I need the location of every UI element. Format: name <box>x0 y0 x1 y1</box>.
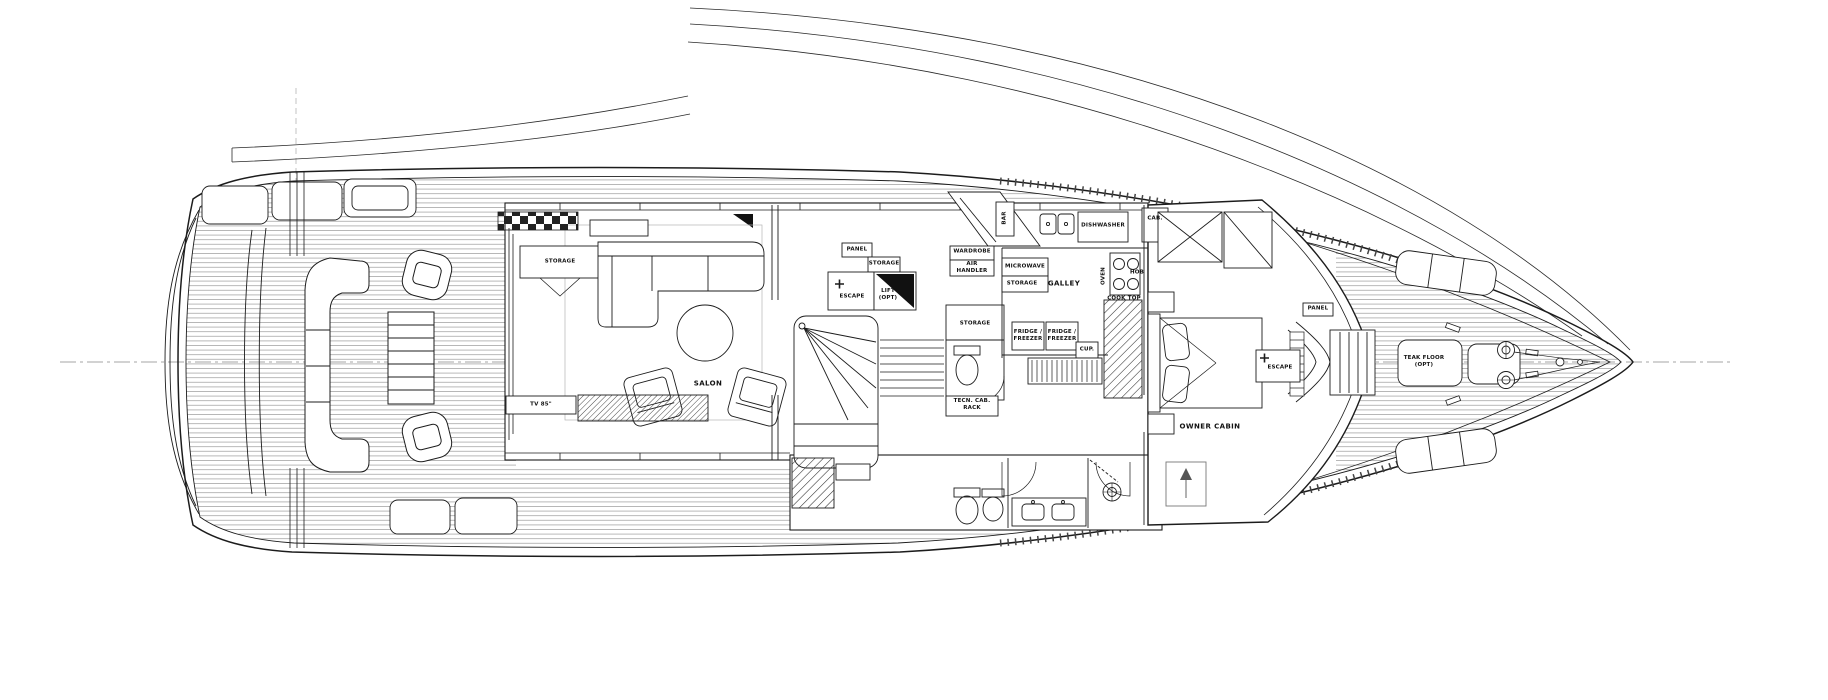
deck-hatch-1 <box>1398 340 1462 386</box>
day-head <box>946 305 1004 402</box>
direction-arrow-box <box>1166 462 1206 506</box>
fridge-box-1 <box>1012 322 1044 350</box>
storage-lift-box <box>868 257 900 272</box>
vanity <box>1012 498 1086 526</box>
salon-sideboard-checker <box>498 212 578 230</box>
tv-cabinet <box>578 395 708 421</box>
air-handler-box <box>950 260 994 276</box>
windlass-1 <box>1498 342 1515 359</box>
escape-hatch-fwd <box>1256 350 1300 382</box>
yacht-main-deck-plan: STORAGE TV 85" SALON PANEL STORAGE ESCAP… <box>0 0 1828 700</box>
tv-label-box <box>506 396 576 414</box>
dishwasher-box <box>1078 212 1128 242</box>
panel-box <box>842 243 872 257</box>
bar-table <box>996 202 1014 236</box>
windlass-2 <box>1498 372 1515 389</box>
escape-hatch-mid <box>828 272 874 310</box>
fridge-box-2 <box>1046 322 1078 350</box>
cup-box <box>1076 342 1098 358</box>
stair-down-curved <box>794 316 878 468</box>
microwave-box <box>1002 258 1048 276</box>
owner-bed <box>1148 314 1262 412</box>
storage-cabinet <box>520 246 600 278</box>
nightstand-2 <box>1148 414 1174 434</box>
aft-slat-table <box>388 312 434 404</box>
deck-plan-drawing <box>0 0 1828 700</box>
stairs-up <box>1104 300 1142 398</box>
closet-hatched <box>792 458 834 508</box>
tecn-rack-box <box>946 396 998 416</box>
slatted-sideboard <box>1028 358 1102 384</box>
nightstand-1 <box>1148 292 1174 312</box>
wardrobe-box <box>950 246 994 260</box>
storage-box <box>1002 276 1048 292</box>
salon-round-table <box>677 305 733 361</box>
foredeck-vestibule <box>1330 330 1375 395</box>
panel-box-fwd <box>1303 303 1333 316</box>
cooktop <box>1110 253 1140 295</box>
